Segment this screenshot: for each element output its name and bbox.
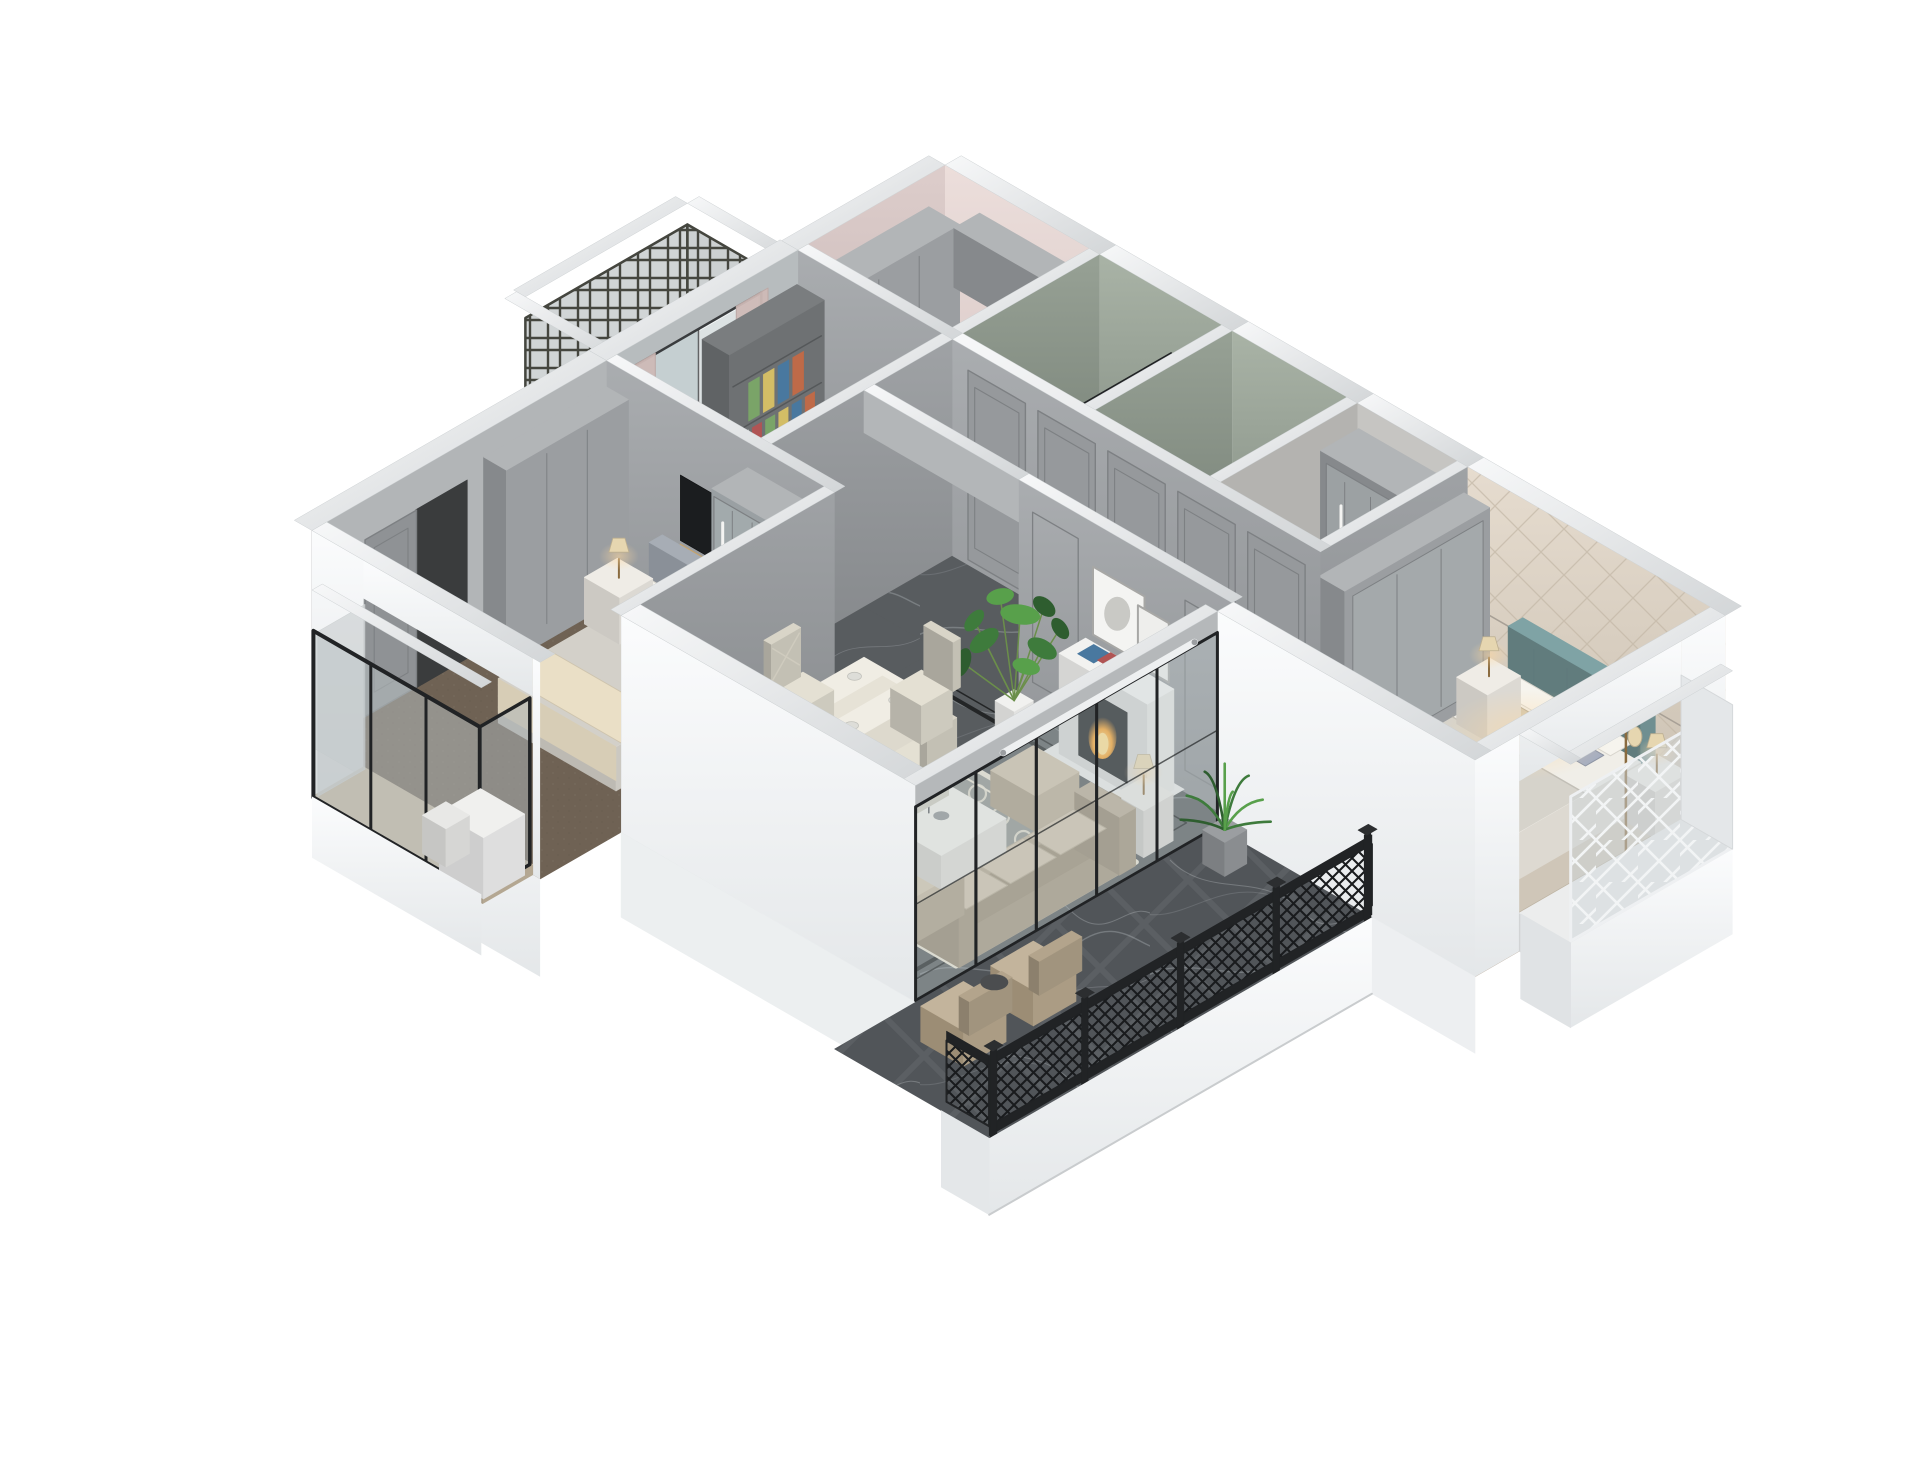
apartment-cutaway-svg <box>0 0 1920 1468</box>
floorplan-render: Isometric 3D dollhouse cutaway render of… <box>0 0 1920 1468</box>
apartment-model <box>294 156 1741 1215</box>
apartment-cutaway-figure: Isometric 3D dollhouse cutaway render of… <box>0 0 1920 1468</box>
